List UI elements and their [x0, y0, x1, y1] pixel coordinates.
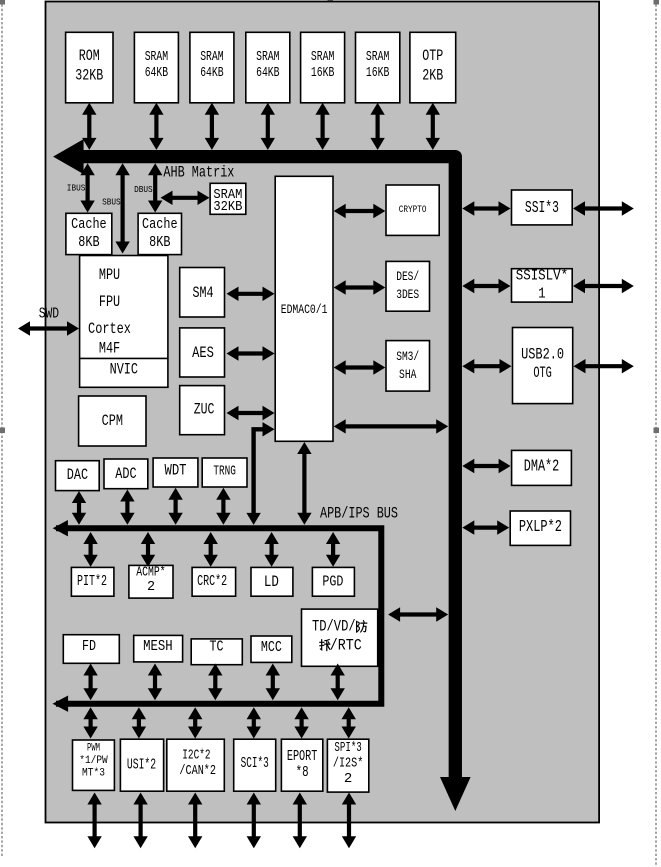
- svg-text:*1/PW: *1/PW: [79, 755, 108, 767]
- svg-text:ROM: ROM: [79, 47, 100, 65]
- svg-text:MCC: MCC: [261, 639, 282, 656]
- svg-text:SCI*3: SCI*3: [241, 755, 269, 772]
- svg-text:CRC*2: CRC*2: [197, 574, 227, 590]
- svg-text:FPU: FPU: [99, 293, 120, 311]
- svg-text:64KB: 64KB: [256, 65, 279, 81]
- svg-text:SRAM: SRAM: [311, 49, 334, 65]
- svg-text:LD: LD: [264, 573, 279, 591]
- svg-text:FD: FD: [82, 638, 96, 655]
- svg-text:1: 1: [538, 286, 546, 303]
- svg-text:SRAM: SRAM: [145, 49, 168, 65]
- svg-text:SRAM: SRAM: [200, 49, 223, 65]
- svg-text:PIT*2: PIT*2: [77, 574, 107, 590]
- svg-text:SM3/: SM3/: [396, 349, 419, 364]
- svg-text:ACMP*: ACMP*: [136, 566, 165, 581]
- svg-text:2KB: 2KB: [422, 67, 443, 85]
- svg-text:USB2.0: USB2.0: [521, 345, 564, 363]
- svg-text:WDT: WDT: [165, 462, 187, 480]
- svg-text:2: 2: [344, 771, 352, 787]
- svg-text:PWM: PWM: [87, 743, 100, 755]
- svg-text:SM4: SM4: [193, 284, 214, 302]
- svg-text:AES: AES: [192, 344, 214, 362]
- svg-text:/I2S*: /I2S*: [333, 755, 364, 771]
- svg-text:DMA*2: DMA*2: [524, 458, 560, 477]
- svg-text:TRNG: TRNG: [213, 464, 236, 480]
- svg-text:EPORT: EPORT: [287, 748, 318, 765]
- svg-text:32KB: 32KB: [75, 67, 103, 85]
- svg-text:OTP: OTP: [422, 47, 443, 65]
- svg-text:MESH: MESH: [143, 638, 173, 655]
- svg-text:/CAN*2: /CAN*2: [179, 764, 216, 779]
- svg-text:64KB: 64KB: [200, 65, 223, 81]
- svg-text:EDMAC0/1: EDMAC0/1: [281, 302, 328, 317]
- svg-text:Cache: Cache: [142, 216, 178, 233]
- svg-text:8KB: 8KB: [149, 234, 170, 251]
- svg-text:DAC: DAC: [67, 466, 88, 484]
- svg-text:DBUS: DBUS: [134, 184, 153, 195]
- svg-text:8KB: 8KB: [78, 234, 99, 251]
- svg-text:Cache: Cache: [71, 216, 107, 233]
- svg-text:ZUC: ZUC: [194, 401, 215, 419]
- svg-text:ADC: ADC: [115, 465, 136, 483]
- svg-text:DES/: DES/: [396, 269, 419, 284]
- svg-text:SRAM: SRAM: [256, 49, 279, 65]
- svg-text:/RTC: /RTC: [330, 636, 362, 654]
- svg-text:TD/VD/: TD/VD/: [312, 618, 356, 636]
- svg-text:SSI*3: SSI*3: [525, 198, 559, 217]
- svg-text:TC: TC: [210, 639, 224, 656]
- svg-text:NVIC: NVIC: [110, 360, 138, 378]
- svg-text:SPI*3: SPI*3: [334, 740, 361, 756]
- svg-text:AHB Matrix: AHB Matrix: [163, 164, 234, 182]
- svg-text:16KB: 16KB: [366, 65, 389, 81]
- svg-text:64KB: 64KB: [145, 65, 168, 81]
- svg-text:MT*3: MT*3: [82, 767, 105, 779]
- svg-text:I2C*2: I2C*2: [182, 749, 210, 764]
- svg-text:16KB: 16KB: [311, 65, 334, 81]
- svg-text:USI*2: USI*2: [127, 757, 156, 774]
- svg-text:M4F: M4F: [99, 339, 120, 357]
- svg-text:Cortex: Cortex: [88, 320, 131, 338]
- svg-text:3DES: 3DES: [396, 287, 419, 302]
- svg-text:IBUS: IBUS: [67, 183, 86, 194]
- svg-text:CPM: CPM: [102, 412, 123, 430]
- svg-text:CRYPTO: CRYPTO: [399, 204, 427, 216]
- svg-text:SRAM: SRAM: [366, 49, 389, 65]
- svg-text:*8: *8: [296, 764, 309, 781]
- svg-text:SBUS: SBUS: [102, 196, 121, 207]
- svg-text:SSISLV*: SSISLV*: [516, 267, 568, 284]
- svg-text:32KB: 32KB: [213, 200, 242, 215]
- svg-text:APB/IPS BUS: APB/IPS BUS: [320, 505, 398, 523]
- svg-text:SHA: SHA: [399, 367, 416, 382]
- svg-text:SWD: SWD: [39, 306, 59, 323]
- svg-text:MPU: MPU: [99, 266, 120, 284]
- svg-text:OTG: OTG: [533, 364, 552, 382]
- svg-text:2: 2: [147, 580, 155, 595]
- svg-text:PXLP*2: PXLP*2: [519, 518, 562, 537]
- svg-text:PGD: PGD: [322, 573, 343, 590]
